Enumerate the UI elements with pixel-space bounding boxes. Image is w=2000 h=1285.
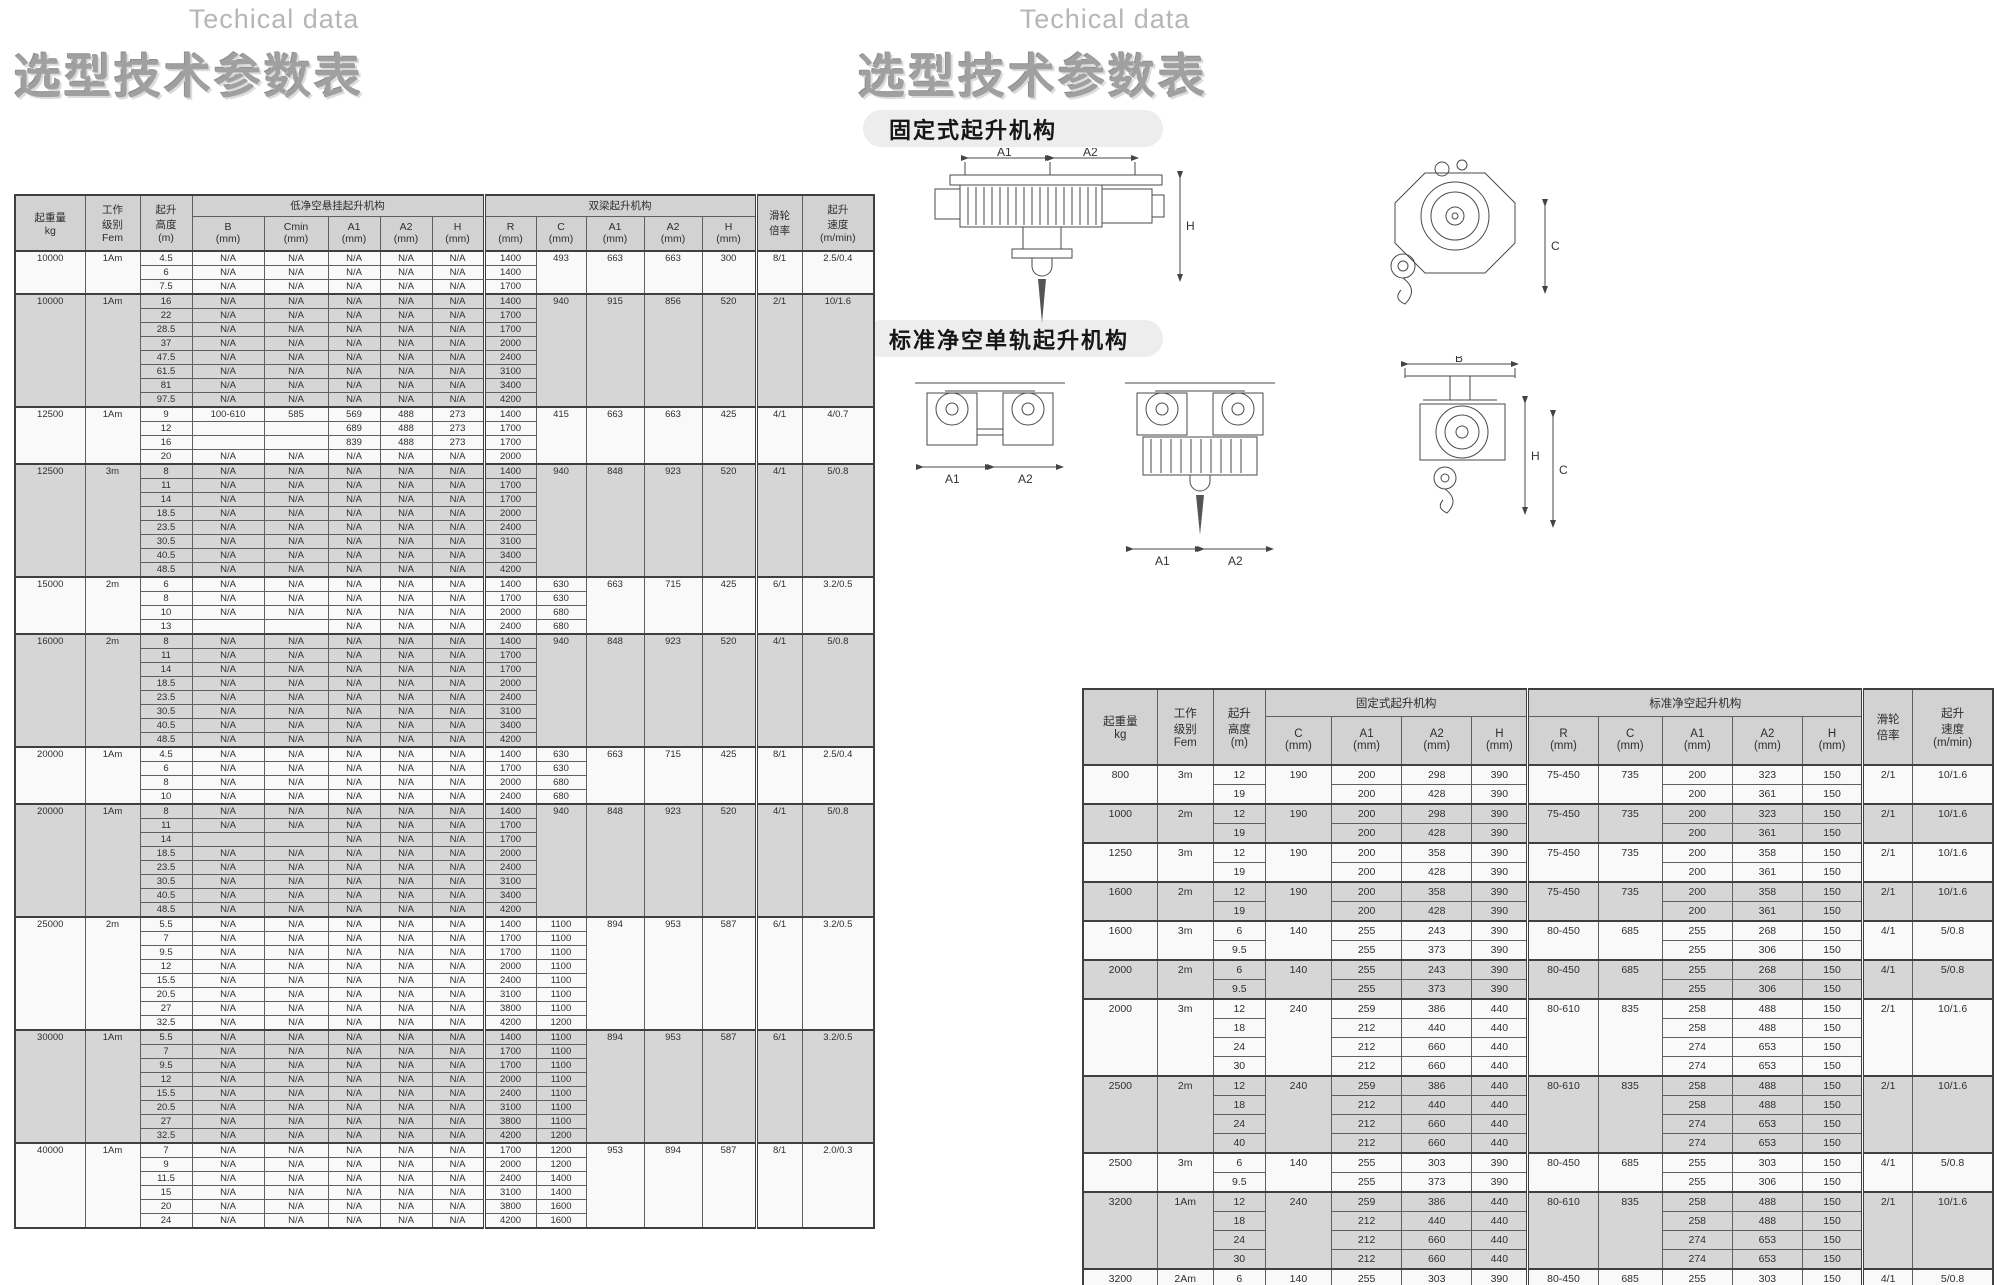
- cell: 200: [1662, 882, 1732, 902]
- cell: N/A: [328, 917, 380, 932]
- cell: 663: [644, 251, 702, 294]
- ratio-cell: 2/1: [1863, 1076, 1913, 1153]
- cell: N/A: [264, 1200, 328, 1214]
- height-cell: 27: [140, 1115, 192, 1129]
- header-cell: H(mm): [702, 216, 756, 251]
- height-cell: 97.5: [140, 393, 192, 408]
- cell: 685: [1598, 1153, 1662, 1192]
- header-text: R(mm): [486, 219, 536, 247]
- dim-label-h: H: [1186, 219, 1195, 233]
- header-cell: H(mm): [432, 216, 484, 251]
- cell: N/A: [328, 393, 380, 408]
- header-line: 起升: [1913, 705, 1992, 721]
- cell: N/A: [328, 251, 380, 266]
- cell: 1700: [484, 932, 536, 946]
- cell: N/A: [432, 549, 484, 563]
- header-cell: 起重量kg: [15, 195, 85, 251]
- cell: N/A: [328, 663, 380, 677]
- fixed-hoist-diagram: A1 A2 H: [895, 148, 1595, 333]
- height-cell: 23.5: [140, 521, 192, 535]
- cell: N/A: [328, 819, 380, 833]
- cell: N/A: [432, 323, 484, 337]
- duty-cell: 1Am: [85, 747, 140, 804]
- height-cell: 30.5: [140, 535, 192, 549]
- header-row: 起重量kg工作级别Fem起升高度(m)固定式起升机构标准净空起升机构滑轮倍率起升…: [1083, 689, 1993, 716]
- cell: 255: [1662, 1153, 1732, 1173]
- header-text: H(mm): [1803, 726, 1861, 754]
- speed-cell: 2.5/0.4: [802, 747, 874, 804]
- cell: 390: [1472, 941, 1528, 961]
- cell: N/A: [432, 790, 484, 805]
- cell: N/A: [192, 1115, 264, 1129]
- cell: N/A: [328, 592, 380, 606]
- speed-cell: 10/1.6: [1913, 843, 1993, 882]
- dim-label-a2: A2: [1228, 554, 1243, 568]
- cell: N/A: [380, 620, 432, 635]
- cell: N/A: [432, 1200, 484, 1214]
- header-cell: 起升高度(m): [1213, 689, 1265, 765]
- cell: 663: [644, 407, 702, 464]
- cell: N/A: [328, 450, 380, 465]
- header-line: (mm): [1599, 740, 1662, 752]
- capacity-cell: 10000: [15, 251, 85, 294]
- capacity-cell: 40000: [15, 1143, 85, 1228]
- dim-label-a2: A2: [1083, 148, 1098, 159]
- cell: N/A: [264, 450, 328, 465]
- cell: 488: [1732, 1212, 1802, 1231]
- dim-label-c: C: [1559, 463, 1568, 477]
- height-cell: 9: [140, 1158, 192, 1172]
- cell: 190: [1265, 804, 1331, 843]
- cell: N/A: [380, 1101, 432, 1115]
- height-cell: 6: [1213, 1153, 1265, 1173]
- cell: 255: [1332, 1173, 1402, 1193]
- header-text: H(mm): [433, 219, 483, 247]
- capacity-cell: 1600: [1083, 882, 1157, 921]
- cell: N/A: [264, 889, 328, 903]
- cell: 212: [1332, 1057, 1402, 1077]
- monorail-hoist-diagram: A1 A2 A1 A2 B: [895, 356, 1595, 571]
- height-cell: 19: [1213, 863, 1265, 883]
- capacity-cell: 1000: [1083, 804, 1157, 843]
- cell: 258: [1662, 1076, 1732, 1096]
- height-cell: 19: [1213, 824, 1265, 844]
- capacity-cell: 1600: [1083, 921, 1157, 960]
- header-line: B: [193, 221, 264, 233]
- cell: 4200: [484, 563, 536, 578]
- cell: 520: [702, 804, 756, 917]
- cell: 150: [1802, 999, 1862, 1019]
- cell: N/A: [264, 649, 328, 663]
- header-line: A1: [587, 221, 644, 233]
- cell: N/A: [264, 266, 328, 280]
- dim-label-h: H: [1531, 449, 1540, 463]
- cell: 390: [1472, 843, 1528, 863]
- cell: 1400: [536, 1172, 586, 1186]
- cell: 1200: [536, 1016, 586, 1031]
- subtitle-left: Techical data: [14, 4, 534, 35]
- header-text: 起升速度(m/min): [803, 200, 874, 246]
- height-cell: 15.5: [140, 974, 192, 988]
- header-line: (mm): [265, 233, 328, 245]
- cell: N/A: [432, 493, 484, 507]
- cell: 715: [644, 577, 702, 634]
- table-row: 250002m5.5N/AN/AN/AN/AN/A140011008949535…: [15, 917, 874, 932]
- cell: N/A: [380, 634, 432, 649]
- cell: N/A: [380, 691, 432, 705]
- cell: 200: [1332, 785, 1402, 805]
- cell: N/A: [192, 535, 264, 549]
- section-label-fixed-hoist: 固定式起升机构: [863, 110, 1163, 147]
- cell: N/A: [380, 719, 432, 733]
- cell: 3400: [484, 719, 536, 733]
- cell: 2400: [484, 1172, 536, 1186]
- cell: 150: [1802, 1076, 1862, 1096]
- cell: 243: [1402, 960, 1472, 980]
- cell: N/A: [264, 705, 328, 719]
- speed-cell: 5/0.8: [1913, 1269, 1993, 1285]
- cell: 440: [1472, 1231, 1528, 1250]
- header-line: (mm): [1472, 740, 1526, 752]
- cell: 390: [1472, 921, 1528, 941]
- cell: 140: [1265, 921, 1331, 960]
- cell: N/A: [192, 1143, 264, 1158]
- cell: N/A: [264, 1158, 328, 1172]
- height-cell: 24: [1213, 1231, 1265, 1250]
- cell: 358: [1402, 882, 1472, 902]
- header-line: (mm): [381, 233, 432, 245]
- cell: N/A: [432, 1059, 484, 1073]
- cell: [264, 620, 328, 635]
- cell: N/A: [380, 1016, 432, 1031]
- cell: N/A: [328, 1030, 380, 1045]
- cell: 4200: [484, 903, 536, 918]
- cell: 150: [1802, 1192, 1862, 1212]
- duty-cell: 3m: [85, 464, 140, 577]
- header-line: kg: [1084, 729, 1157, 741]
- cell: 2400: [484, 1087, 536, 1101]
- height-cell: 48.5: [140, 733, 192, 748]
- cell: N/A: [432, 960, 484, 974]
- header-line: 起重量: [16, 210, 85, 225]
- cell: 839: [328, 436, 380, 450]
- cell: 735: [1598, 765, 1662, 804]
- height-cell: 14: [140, 663, 192, 677]
- cell: 630: [536, 592, 586, 606]
- cell: 1100: [536, 988, 586, 1002]
- cell: N/A: [432, 251, 484, 266]
- cell: 4200: [484, 393, 536, 408]
- cell: N/A: [264, 1059, 328, 1073]
- cell: 940: [536, 464, 586, 577]
- header-cell: A2(mm): [1732, 716, 1802, 765]
- cell: N/A: [432, 889, 484, 903]
- height-cell: 20: [140, 1200, 192, 1214]
- ratio-cell: 8/1: [756, 747, 802, 804]
- cell: 440: [1402, 1212, 1472, 1231]
- cell: 190: [1265, 882, 1331, 921]
- cell: N/A: [328, 875, 380, 889]
- height-cell: 11.5: [140, 1172, 192, 1186]
- cell: 660: [1402, 1231, 1472, 1250]
- cell: 2000: [484, 1073, 536, 1087]
- cell: N/A: [328, 337, 380, 351]
- cell: N/A: [432, 747, 484, 762]
- height-cell: 8: [140, 804, 192, 819]
- cell: N/A: [264, 1087, 328, 1101]
- cell: 425: [702, 407, 756, 464]
- cell: 306: [1732, 1173, 1802, 1193]
- cell: N/A: [192, 450, 264, 465]
- cell: N/A: [328, 309, 380, 323]
- capacity-cell: 2500: [1083, 1076, 1157, 1153]
- cell: 440: [1472, 1076, 1528, 1096]
- cell: 488: [1732, 1192, 1802, 1212]
- cell: 685: [1598, 1269, 1662, 1285]
- cell: N/A: [192, 294, 264, 309]
- cell: 1700: [484, 422, 536, 436]
- speed-cell: 2.0/0.3: [802, 1143, 874, 1228]
- cell: 1100: [536, 917, 586, 932]
- cell: 2000: [484, 1158, 536, 1172]
- cell: N/A: [192, 1186, 264, 1200]
- cell: N/A: [328, 365, 380, 379]
- speed-cell: 10/1.6: [1913, 999, 1993, 1076]
- cell: 303: [1732, 1153, 1802, 1173]
- cell: N/A: [328, 620, 380, 635]
- ratio-cell: 4/1: [756, 804, 802, 917]
- table-body: 100001Am4.5N/AN/AN/AN/AN/A14004936636633…: [15, 251, 874, 1228]
- height-cell: 19: [1213, 785, 1265, 805]
- speed-cell: 5/0.8: [1913, 921, 1993, 960]
- cell: N/A: [380, 1143, 432, 1158]
- height-cell: 8: [140, 776, 192, 790]
- cell: N/A: [380, 875, 432, 889]
- cell: N/A: [380, 251, 432, 266]
- cell: 428: [1402, 863, 1472, 883]
- cell: 488: [380, 422, 432, 436]
- cell: N/A: [328, 1115, 380, 1129]
- cell: 1700: [484, 323, 536, 337]
- height-cell: 37: [140, 337, 192, 351]
- cell: 1600: [536, 1200, 586, 1214]
- cell: N/A: [380, 549, 432, 563]
- cell: N/A: [192, 606, 264, 620]
- cell: N/A: [264, 903, 328, 918]
- cell: N/A: [380, 790, 432, 805]
- speed-cell: 10/1.6: [1913, 804, 1993, 843]
- cell: 150: [1802, 1038, 1862, 1057]
- cell: N/A: [328, 1016, 380, 1031]
- header-text: C(mm): [1266, 726, 1331, 754]
- table-row: 32002Am614025530339080-4506852553031504/…: [1083, 1269, 1993, 1285]
- speed-cell: 3.2/0.5: [802, 917, 874, 1030]
- cell: N/A: [380, 592, 432, 606]
- cell: 1400: [484, 577, 536, 592]
- cell: 150: [1802, 785, 1862, 805]
- cell: N/A: [192, 280, 264, 295]
- cell: N/A: [432, 280, 484, 295]
- table-body: 8003m1219020029839075-4507352003231502/1…: [1083, 765, 1993, 1285]
- cell: 440: [1472, 1134, 1528, 1154]
- cell: 440: [1402, 1096, 1472, 1115]
- header-text: 起升高度(m): [1214, 703, 1265, 751]
- height-cell: 11: [140, 649, 192, 663]
- speed-cell: 5/0.8: [802, 804, 874, 917]
- cell: 894: [586, 1030, 644, 1143]
- cell: 212: [1332, 1231, 1402, 1250]
- cell: N/A: [264, 1214, 328, 1229]
- cell: N/A: [328, 351, 380, 365]
- cell: N/A: [380, 464, 432, 479]
- cell: N/A: [328, 649, 380, 663]
- cell: N/A: [380, 649, 432, 663]
- cell: 258: [1662, 1096, 1732, 1115]
- cell: 390: [1472, 1269, 1528, 1285]
- cell: N/A: [328, 691, 380, 705]
- header-line: 起升: [141, 202, 192, 217]
- cell: 190: [1265, 765, 1331, 804]
- cell: N/A: [432, 705, 484, 719]
- capacity-cell: 25000: [15, 917, 85, 1030]
- cell: N/A: [380, 819, 432, 833]
- cell: 1700: [484, 833, 536, 847]
- cell: N/A: [192, 251, 264, 266]
- cell: N/A: [432, 620, 484, 635]
- cell: 488: [1732, 1096, 1802, 1115]
- cell: 660: [1402, 1038, 1472, 1057]
- height-cell: 6: [140, 762, 192, 776]
- ratio-cell: 6/1: [756, 577, 802, 634]
- cell: N/A: [192, 875, 264, 889]
- speed-cell: 3.2/0.5: [802, 1030, 874, 1143]
- header-cell: 工作级别Fem: [1157, 689, 1213, 765]
- cell: N/A: [264, 747, 328, 762]
- cell: N/A: [192, 379, 264, 393]
- cell: N/A: [432, 1143, 484, 1158]
- cell: N/A: [328, 577, 380, 592]
- ratio-cell: 8/1: [756, 1143, 802, 1228]
- cell: N/A: [192, 309, 264, 323]
- height-cell: 8: [140, 634, 192, 649]
- cell: 200: [1332, 804, 1402, 824]
- height-cell: 40: [1213, 1134, 1265, 1154]
- cell: N/A: [192, 932, 264, 946]
- cell: N/A: [192, 351, 264, 365]
- cell: N/A: [192, 1214, 264, 1229]
- cell: N/A: [192, 464, 264, 479]
- header-text: C(mm): [537, 219, 586, 247]
- cell: 1400: [484, 804, 536, 819]
- header-line: 滑轮: [758, 208, 802, 223]
- header-line: 高度: [141, 217, 192, 232]
- cell: N/A: [432, 663, 484, 677]
- dim-label-a1: A1: [1155, 554, 1170, 568]
- page-title-left: 选型技术参数表: [14, 38, 364, 107]
- cell: 569: [328, 407, 380, 422]
- height-cell: 7: [140, 932, 192, 946]
- height-cell: 5.5: [140, 917, 192, 932]
- cell: 680: [536, 606, 586, 620]
- table-row: 150002m6N/AN/AN/AN/AN/A14006306637154256…: [15, 577, 874, 592]
- cell: N/A: [192, 577, 264, 592]
- cell: 150: [1802, 960, 1862, 980]
- table-row: 400001Am7N/AN/AN/AN/AN/A1700120095389458…: [15, 1143, 874, 1158]
- cell: 689: [328, 422, 380, 436]
- cell: [192, 422, 264, 436]
- cell: 653: [1732, 1057, 1802, 1077]
- cell: 390: [1472, 1173, 1528, 1193]
- cell: N/A: [432, 677, 484, 691]
- cell: N/A: [264, 323, 328, 337]
- cell: 3800: [484, 1115, 536, 1129]
- cell: N/A: [380, 861, 432, 875]
- header-line: (mm): [193, 233, 264, 245]
- duty-cell: 2m: [1157, 960, 1213, 999]
- height-cell: 12: [1213, 804, 1265, 824]
- cell: N/A: [264, 294, 328, 309]
- header-line: (mm): [1402, 740, 1471, 752]
- cell: N/A: [192, 1129, 264, 1144]
- cell: 75-450: [1528, 804, 1598, 843]
- cell: N/A: [264, 493, 328, 507]
- cell: N/A: [432, 294, 484, 309]
- ratio-cell: 2/1: [1863, 1192, 1913, 1269]
- cell: 520: [702, 294, 756, 407]
- cell: 255: [1332, 980, 1402, 1000]
- header-line: 起重量: [1084, 713, 1157, 729]
- header-row: 起重量kg工作级别Fem起升高度(m)低净空悬挂起升机构双梁起升机构滑轮倍率起升…: [15, 195, 874, 216]
- capacity-cell: 10000: [15, 294, 85, 407]
- cell: N/A: [432, 521, 484, 535]
- cell: N/A: [380, 507, 432, 521]
- cell: 663: [586, 251, 644, 294]
- cell: N/A: [192, 337, 264, 351]
- cell: N/A: [192, 634, 264, 649]
- cell: 3400: [484, 889, 536, 903]
- cell: 255: [1662, 921, 1732, 941]
- cell: 835: [1598, 1076, 1662, 1153]
- cell: N/A: [432, 762, 484, 776]
- cell: 428: [1402, 824, 1472, 844]
- cell: 150: [1802, 921, 1862, 941]
- cell: 3100: [484, 1101, 536, 1115]
- height-cell: 40.5: [140, 719, 192, 733]
- speed-cell: 10/1.6: [1913, 1192, 1993, 1269]
- header-cell: A1(mm): [586, 216, 644, 251]
- cell: N/A: [192, 790, 264, 805]
- header-line: (m/min): [1913, 737, 1992, 749]
- header-line: (mm): [486, 233, 536, 245]
- cell: 140: [1265, 1269, 1331, 1285]
- cell: 1100: [536, 1030, 586, 1045]
- header-text: 滑轮倍率: [758, 206, 802, 240]
- header-line: 速度: [1913, 721, 1992, 737]
- cell: N/A: [264, 507, 328, 521]
- cell: N/A: [328, 861, 380, 875]
- cell: N/A: [380, 677, 432, 691]
- ratio-cell: 4/1: [1863, 921, 1913, 960]
- cell: N/A: [192, 917, 264, 932]
- cell: N/A: [192, 960, 264, 974]
- cell: N/A: [380, 804, 432, 819]
- height-cell: 12: [1213, 1076, 1265, 1096]
- cell: N/A: [380, 1002, 432, 1016]
- cell: 488: [1732, 1019, 1802, 1038]
- cell: 298: [1402, 804, 1472, 824]
- cell: N/A: [192, 521, 264, 535]
- cell: N/A: [328, 606, 380, 620]
